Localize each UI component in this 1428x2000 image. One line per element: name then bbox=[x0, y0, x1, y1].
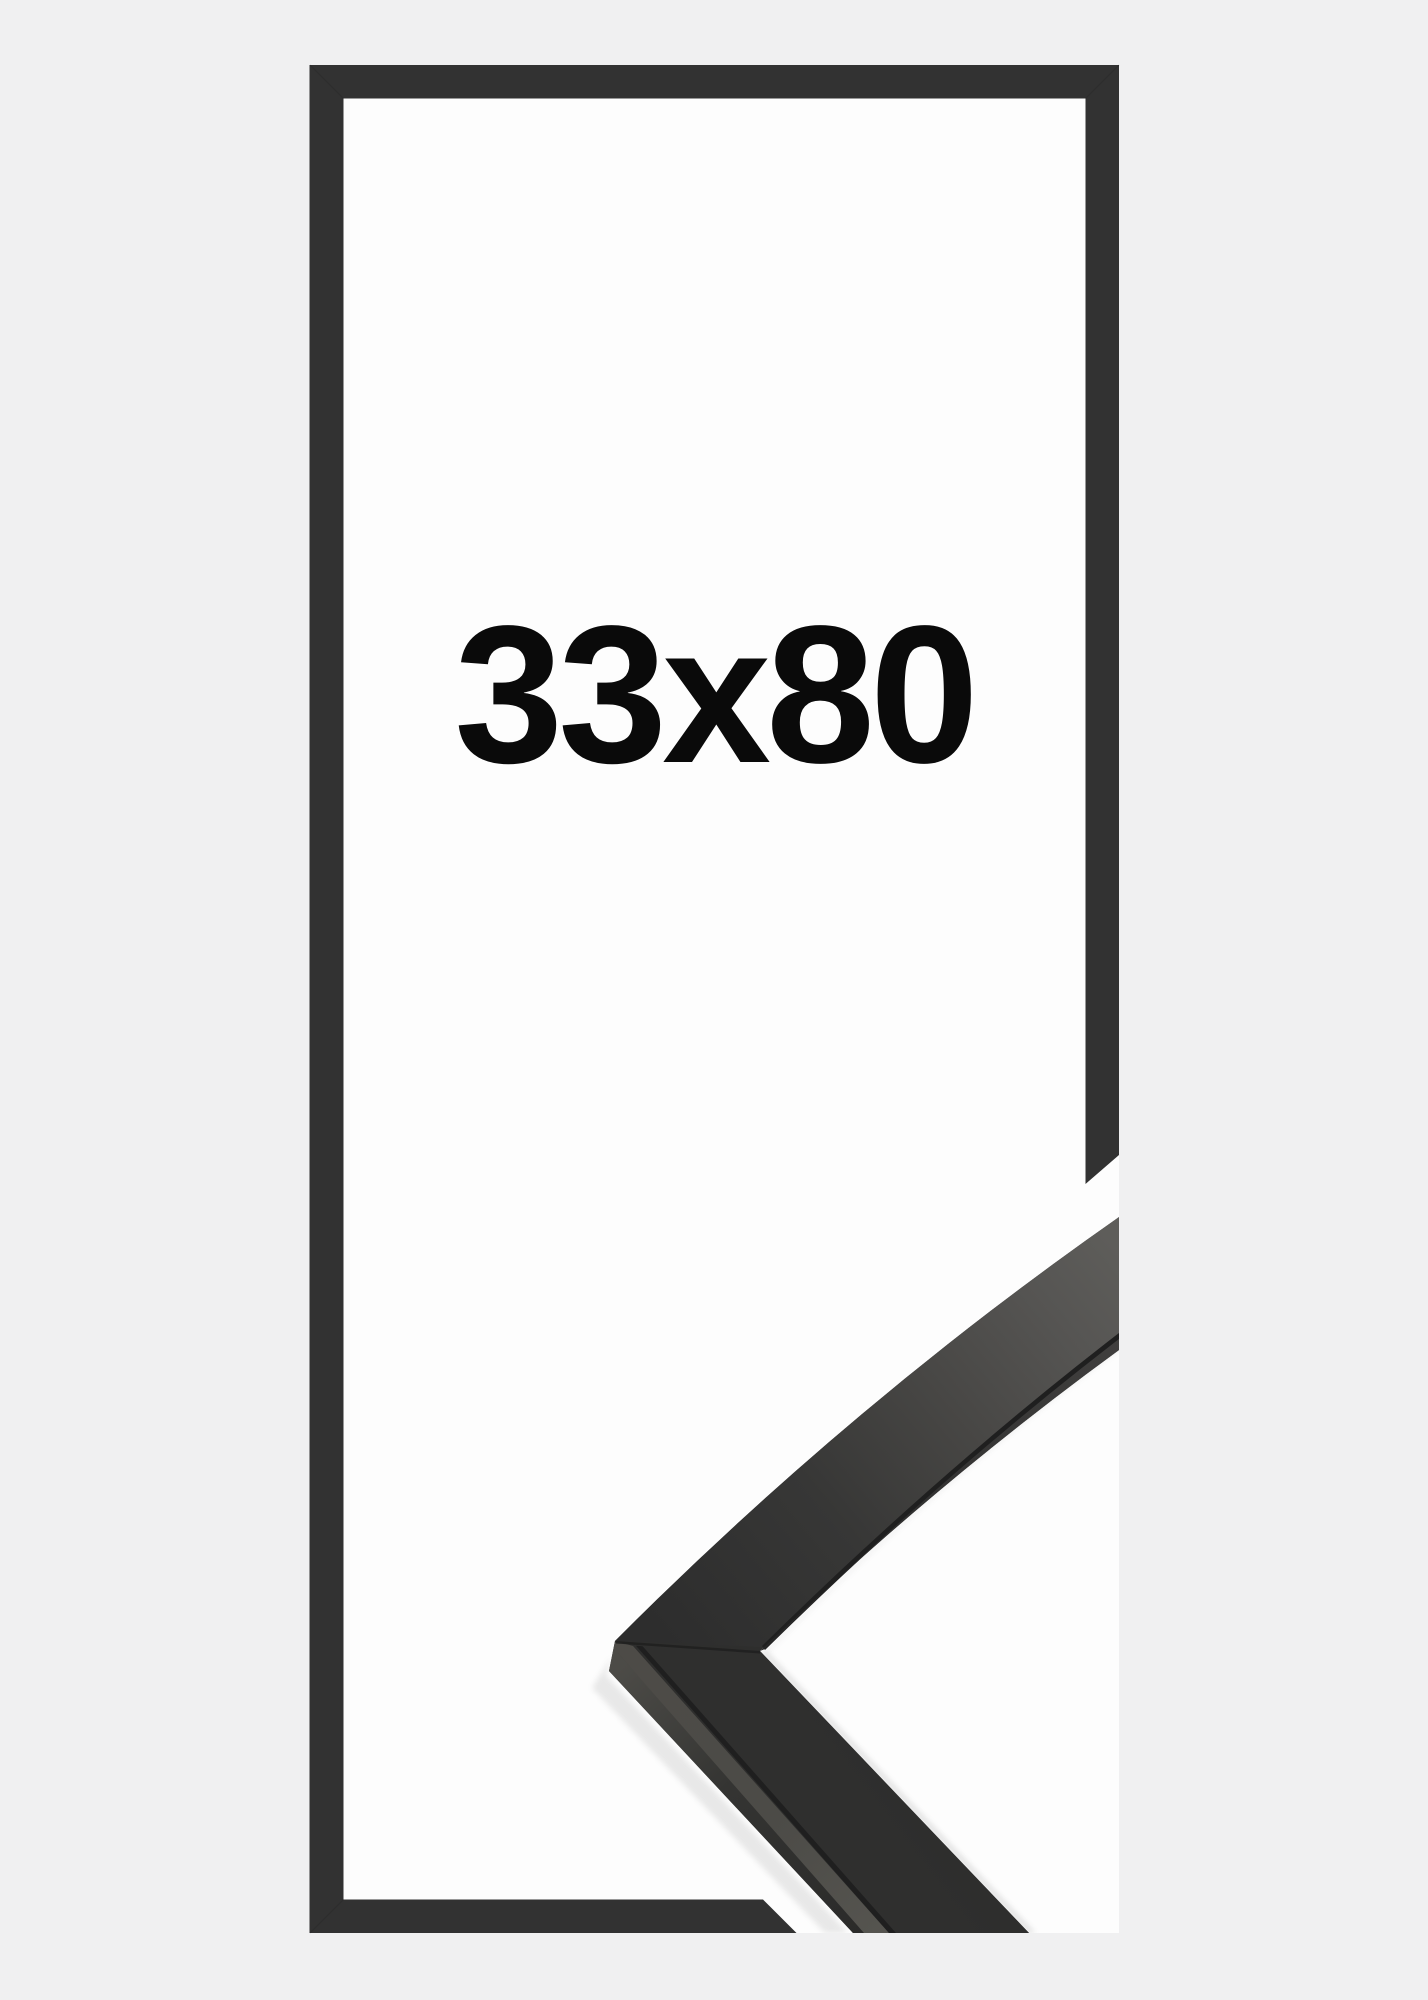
svg-text:33x80: 33x80 bbox=[454, 585, 974, 804]
